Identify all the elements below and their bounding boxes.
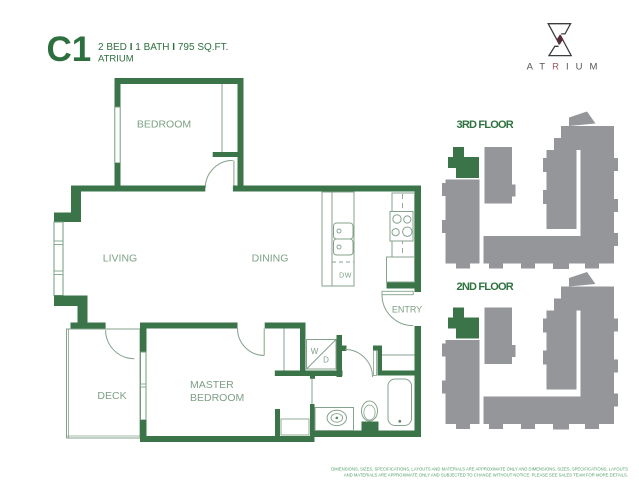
svg-text:DECK: DECK [97, 390, 126, 402]
svg-text:2 BED I 1 BATH I 795 SQ.FT.: 2 BED I 1 BATH I 795 SQ.FT. [98, 42, 228, 53]
svg-text:ATRIUM: ATRIUM [527, 62, 605, 73]
svg-text:DIMENSIONS, SIZES, SPECIFICATI: DIMENSIONS, SIZES, SPECIFICATIONS, LAYOU… [331, 467, 628, 472]
svg-text:BEDROOM: BEDROOM [190, 392, 244, 404]
svg-text:W: W [311, 347, 319, 356]
svg-text:ENTRY: ENTRY [392, 305, 422, 315]
svg-text:DINING: DINING [252, 253, 289, 265]
svg-text:3RD FLOOR: 3RD FLOOR [457, 119, 514, 131]
svg-text:LIVING: LIVING [103, 253, 137, 265]
svg-text:D: D [323, 356, 329, 365]
svg-text:MASTER: MASTER [190, 379, 234, 391]
svg-text:C1: C1 [47, 30, 92, 69]
svg-text:BEDROOM: BEDROOM [137, 119, 191, 131]
svg-text:AND MATERIALS ARE APPROXIMATE: AND MATERIALS ARE APPROXIMATE ONLY AND S… [344, 472, 628, 477]
svg-text:2ND FLOOR: 2ND FLOOR [457, 281, 514, 293]
svg-text:DW: DW [339, 273, 352, 280]
svg-text:ATRIUM: ATRIUM [98, 54, 134, 65]
